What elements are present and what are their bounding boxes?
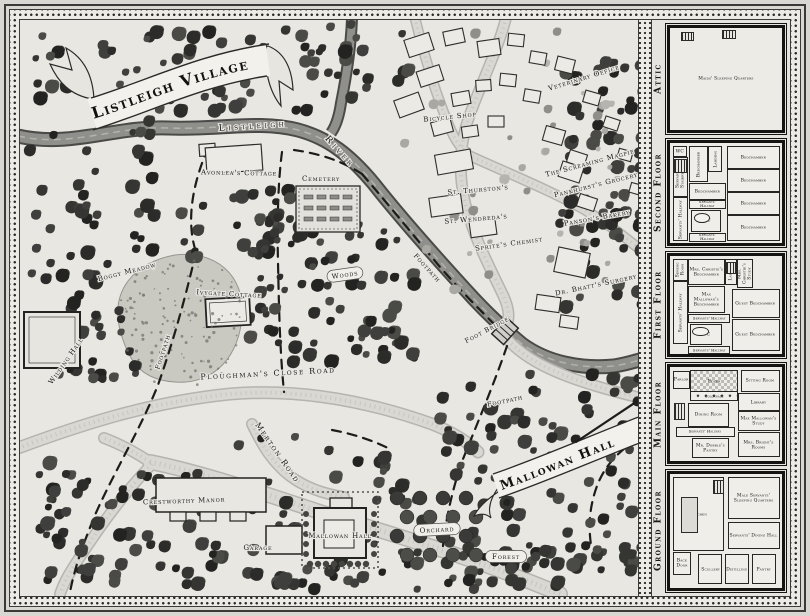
tree <box>292 106 301 115</box>
tree <box>613 134 624 145</box>
tree <box>244 331 258 344</box>
tree <box>66 252 75 260</box>
room-label: Scullery <box>699 567 722 572</box>
tree <box>311 279 324 292</box>
room: Mr. Dobble's Pantry <box>692 438 729 459</box>
room: Scullery <box>698 554 722 585</box>
tree <box>199 202 208 210</box>
tree <box>523 188 530 195</box>
room-label: Distilling <box>726 567 749 572</box>
tree <box>390 273 399 282</box>
room: Pantry <box>752 554 776 585</box>
tree <box>172 564 180 572</box>
tree <box>103 260 111 268</box>
room-label: Max Mallowan's Bedchamber <box>689 292 724 307</box>
stairs-icon <box>713 480 724 495</box>
tree <box>192 224 204 236</box>
tree <box>583 240 590 246</box>
room-label: Bedchamber <box>728 155 779 160</box>
mallowan-banner-text: Mallowan Hall <box>498 435 618 494</box>
tree <box>347 255 356 263</box>
tree <box>33 79 42 87</box>
building <box>461 125 478 138</box>
tree <box>398 30 406 37</box>
tree <box>277 274 284 281</box>
tree <box>393 237 400 244</box>
tree <box>257 275 264 282</box>
tree <box>137 235 144 242</box>
tree <box>288 241 295 248</box>
building <box>559 315 578 329</box>
village-map: Listleigh Village <box>20 20 638 596</box>
tree <box>347 335 354 342</box>
room-label: Landing <box>713 146 718 172</box>
tree <box>125 179 140 194</box>
tree <box>40 273 51 284</box>
floor-panel-main-floor: Main FloorParlorFoyerColonnadeSitting Ro… <box>652 362 787 466</box>
building <box>555 56 576 74</box>
tree <box>601 100 611 109</box>
tree <box>82 146 91 155</box>
tree <box>300 43 309 52</box>
room: Sitting Room <box>741 370 780 392</box>
tree <box>546 432 557 443</box>
tree <box>620 63 629 72</box>
label-text-footpath-south: Footpath <box>486 393 523 408</box>
label-mallowan-hall-house: Mallowan Hall <box>308 532 371 540</box>
building <box>451 91 471 107</box>
tree <box>501 509 514 521</box>
tree <box>300 104 313 116</box>
frame-inner: Listleigh Village <box>19 19 791 597</box>
tree <box>326 317 335 325</box>
tree <box>109 576 121 587</box>
tree <box>77 479 89 491</box>
tree <box>402 63 416 76</box>
building <box>477 39 501 58</box>
tree <box>620 376 635 391</box>
room-label: Servants' Dining Hall <box>729 533 779 538</box>
tree <box>507 524 521 537</box>
tree <box>596 147 601 152</box>
room: Max Mallowan's Bedchamber <box>688 286 725 313</box>
room: Bedchamber <box>689 146 708 182</box>
tree <box>107 47 116 55</box>
room: Servants' Dining Hall <box>728 522 779 549</box>
tree <box>546 255 554 263</box>
label-cemetery: Cemetery <box>302 175 340 183</box>
tree <box>400 139 409 148</box>
tree <box>562 527 573 537</box>
room: Foyer <box>690 370 738 394</box>
stairs-icon <box>674 159 686 173</box>
tree <box>133 66 141 73</box>
tree <box>592 120 603 131</box>
tree <box>605 261 611 266</box>
building <box>523 89 541 104</box>
tree <box>568 503 578 513</box>
tree <box>201 93 209 101</box>
tree <box>96 331 106 341</box>
tree <box>320 90 328 98</box>
stairs-icon <box>722 30 736 39</box>
tree <box>254 213 265 224</box>
tree <box>150 25 165 39</box>
tree <box>518 416 531 429</box>
tree <box>303 348 317 362</box>
room-label: Bedchamber <box>696 146 701 182</box>
room-label: Max Mallowan's Study <box>739 416 778 426</box>
label-text-merton-road: Merton Road <box>253 421 301 485</box>
building <box>629 182 638 195</box>
tree <box>617 108 624 115</box>
room-label: Maids' Sleeping Quarters <box>695 76 758 81</box>
tree <box>202 25 216 39</box>
tree <box>93 211 102 220</box>
tree <box>625 564 638 576</box>
tree <box>581 541 591 550</box>
tree <box>372 496 381 505</box>
building <box>542 126 565 146</box>
tree <box>375 238 388 251</box>
tree <box>490 445 499 454</box>
tree <box>585 518 596 528</box>
tree <box>407 277 421 291</box>
tree <box>38 32 46 40</box>
room: Max Mallowan's Study <box>738 411 779 431</box>
tree <box>357 281 367 290</box>
footpath-line <box>332 430 390 449</box>
room-label: Colonnade <box>695 394 734 398</box>
label-avonleas-cottage: Avonlea's Cottage <box>200 168 277 177</box>
tree <box>593 111 603 120</box>
tree <box>159 540 171 552</box>
tree <box>182 567 195 579</box>
label-text-forest: Forest <box>492 553 520 561</box>
tree <box>160 60 167 67</box>
building <box>394 92 425 118</box>
room-label: Servants' Hallway <box>693 233 722 241</box>
tree <box>598 566 605 573</box>
tree <box>616 503 624 511</box>
room-label: Male Servants' Sleeping Quarters <box>729 493 779 503</box>
tree <box>575 112 584 121</box>
tree <box>590 238 600 248</box>
tree <box>248 189 259 200</box>
tree <box>115 558 128 571</box>
tree <box>392 75 405 87</box>
tree <box>281 287 288 293</box>
label-merton-road: Merton Road <box>253 421 301 485</box>
map-page: Listleigh Village <box>0 0 810 616</box>
tree <box>637 299 638 309</box>
tree <box>56 269 70 283</box>
tree <box>67 296 81 310</box>
tree <box>478 464 488 474</box>
room: Bedchamber <box>689 183 726 200</box>
tree <box>635 60 638 71</box>
room: Back Door <box>673 552 691 576</box>
svg-text:Mallowan Hall: Mallowan Hall <box>498 435 618 494</box>
tree <box>266 284 274 292</box>
stairs-icon <box>681 32 694 41</box>
tree <box>357 232 364 239</box>
room-label: Mrs. Bright's Rooms <box>739 440 778 450</box>
tree <box>308 307 320 319</box>
room-label: Servants' Hallway <box>692 316 726 320</box>
tree <box>631 285 638 298</box>
room: WC <box>673 146 686 157</box>
footpath-line <box>191 148 208 252</box>
tree <box>525 370 535 379</box>
tree <box>576 293 584 301</box>
room: Mrs. Christie's Study <box>737 259 752 288</box>
room-label: Servants' Hallway <box>681 430 729 434</box>
floor-plan-main-floor: ParlorFoyerColonnadeSitting RoomDining R… <box>667 364 785 464</box>
room: Servants' Hallway <box>688 346 730 354</box>
tree <box>633 219 638 232</box>
floor-plan-ground-floor: KitchenMale Servants' Sleeping QuartersS… <box>667 471 785 591</box>
room-label: Bedchamber <box>728 225 779 230</box>
tree <box>195 537 209 550</box>
tree <box>234 440 245 450</box>
tree <box>578 391 591 404</box>
label-text-garage: Garage <box>243 544 272 552</box>
tree <box>326 22 335 31</box>
tree <box>539 417 548 426</box>
room: Library <box>738 393 779 411</box>
tree <box>467 251 472 256</box>
tree <box>466 413 475 421</box>
tree <box>441 446 452 457</box>
tree <box>353 69 360 76</box>
room: Bedchamber <box>727 192 779 215</box>
room: Maids' Sleeping Quarters <box>695 63 758 96</box>
tree <box>598 513 610 524</box>
tree <box>309 263 316 270</box>
tree <box>606 372 620 386</box>
tree <box>216 37 227 48</box>
tree <box>28 269 36 277</box>
floor-plan-attic: Maids' Sleeping Quarters <box>667 25 785 133</box>
room-label: Library <box>739 400 778 405</box>
tree <box>146 172 159 184</box>
room: Mrs. Christie's Bedchamber <box>688 259 725 286</box>
building <box>488 116 504 127</box>
ivygate-cottage-building <box>205 297 250 327</box>
tree <box>470 28 481 38</box>
room: Servants' Hallway <box>688 314 730 323</box>
room: Parlor <box>673 371 690 389</box>
label-ploughmans-close-road: Ploughman's Close Road <box>200 365 336 381</box>
tree <box>187 30 201 44</box>
tree <box>636 132 638 144</box>
room: Servants' Hallway <box>689 200 726 209</box>
tree <box>324 68 333 77</box>
tree <box>33 91 48 105</box>
tree <box>233 222 241 230</box>
tree <box>132 245 141 253</box>
room-label: Servants' Hallway <box>692 348 726 352</box>
label-text-ploughmans-close-road: Ploughman's Close Road <box>200 365 336 381</box>
building <box>416 65 444 88</box>
label-orchard: Orchard <box>413 522 460 536</box>
room: Servants' Hallway <box>676 427 735 437</box>
building <box>507 33 524 47</box>
tree <box>365 316 377 327</box>
floor-title-first-floor: First Floor <box>652 251 665 359</box>
floor-panel-second-floor: Second FloorWCServants' StairwellServant… <box>652 138 787 248</box>
tree <box>607 202 614 209</box>
room-label: Pantry <box>753 567 776 572</box>
tree <box>88 357 97 366</box>
tree <box>377 451 392 465</box>
island-icon <box>681 497 698 533</box>
tree <box>250 568 264 581</box>
room-label: Mrs. Christie's Study <box>737 259 752 288</box>
tree <box>45 80 59 94</box>
room: Male Servants' Sleeping Quarters <box>728 477 779 519</box>
building <box>429 194 463 217</box>
tree <box>182 579 192 589</box>
tree <box>309 57 320 68</box>
tree <box>286 215 294 223</box>
floor-panel-ground-floor: Ground FloorKitchenMale Servants' Sleepi… <box>652 469 787 593</box>
room-label: Bedchamber <box>728 178 779 183</box>
label-text-mallowan-hall-house: Mallowan Hall <box>308 532 371 540</box>
room-label: Sitting Room <box>741 378 778 383</box>
tree <box>378 569 386 576</box>
svg-text:Listleigh Village: Listleigh Village <box>89 54 250 122</box>
tree <box>316 48 324 55</box>
tree <box>413 548 422 556</box>
tree <box>625 505 638 518</box>
tree <box>73 179 85 191</box>
room: Servants' Hallway <box>673 197 687 241</box>
room: Mrs. Bright's Rooms <box>738 432 779 458</box>
tree <box>174 104 189 118</box>
room-label: Parlor <box>674 377 689 382</box>
tree <box>512 508 526 521</box>
tree <box>109 372 119 382</box>
tree <box>324 446 334 455</box>
room-label: Servants' Hallway <box>678 281 683 344</box>
tree <box>284 192 297 204</box>
room-label: Sewing Room <box>675 259 685 280</box>
tree <box>603 530 611 538</box>
tree <box>288 327 299 337</box>
tree <box>586 265 600 279</box>
tree <box>61 507 71 517</box>
building <box>499 73 516 87</box>
tree <box>46 259 55 267</box>
floor-plan-second-floor: WCServants' StairwellServants' HallwayBe… <box>667 140 785 246</box>
tree <box>46 52 55 61</box>
tree <box>382 308 397 322</box>
room-label: Mrs. Christie's Bedchamber <box>689 267 724 277</box>
tree <box>531 552 541 562</box>
tree <box>362 83 371 92</box>
tree <box>268 326 279 337</box>
room: Bedchamber <box>727 215 779 241</box>
tree <box>437 392 449 404</box>
room-label: Dining Room <box>689 412 728 417</box>
tree <box>543 148 550 155</box>
room: Bedchamber <box>727 146 779 169</box>
label-text-avonleas-cottage: Avonlea's Cottage <box>200 168 277 177</box>
tub-icon <box>694 213 711 223</box>
tree <box>507 135 512 140</box>
room: Guest Bedchamber <box>732 289 780 317</box>
room: Guest Bedchamber <box>732 319 780 351</box>
tree <box>78 190 89 201</box>
tree <box>24 144 36 156</box>
tree <box>281 25 291 34</box>
tree <box>380 468 387 475</box>
cemetery-plot <box>296 186 360 232</box>
tree <box>612 289 623 300</box>
tree <box>175 207 187 219</box>
tree <box>40 516 55 531</box>
tree <box>635 209 638 220</box>
room: Distilling <box>725 554 749 585</box>
tree <box>444 579 453 587</box>
room-label: Guest Bedchamber <box>732 301 778 306</box>
village-map-area: Listleigh Village <box>20 20 638 596</box>
tree <box>295 30 308 43</box>
tree <box>617 493 626 501</box>
tree <box>474 477 482 485</box>
tree <box>45 566 58 579</box>
tree <box>374 271 388 284</box>
label-sprites-chemist: Sprite's Chemist <box>475 235 544 252</box>
tree <box>325 297 334 306</box>
tree <box>373 477 385 488</box>
tree <box>518 164 525 171</box>
tree <box>245 35 256 46</box>
tree <box>95 323 104 331</box>
label-text-sprites-chemist: Sprite's Chemist <box>475 235 544 252</box>
tree <box>351 344 363 355</box>
tree <box>43 531 50 538</box>
room-label: Mr. Dobble's Pantry <box>693 443 728 453</box>
tree <box>316 238 324 245</box>
floor-plan-first-floor: Sewing RoomServants' HallwayMrs. Christi… <box>667 253 785 357</box>
tree <box>180 238 188 245</box>
tree <box>414 586 421 593</box>
tree <box>308 583 321 595</box>
tree <box>395 478 410 492</box>
tree <box>321 257 330 266</box>
tree <box>610 160 625 174</box>
stairs-icon <box>674 403 685 420</box>
tree <box>565 542 576 552</box>
tree <box>539 558 550 568</box>
tree <box>363 351 370 358</box>
room-label: Foyer <box>691 379 737 384</box>
room-label: Guest Bedchamber <box>732 332 778 337</box>
room-label: WC <box>674 149 685 154</box>
tree <box>287 355 300 368</box>
building <box>443 28 465 46</box>
floor-title-ground-floor: Ground Floor <box>652 469 665 593</box>
tree <box>32 244 41 253</box>
tree <box>36 185 47 196</box>
tree <box>345 231 355 240</box>
tree <box>559 300 573 314</box>
room: Sewing Room <box>673 259 687 281</box>
tree <box>619 244 628 253</box>
